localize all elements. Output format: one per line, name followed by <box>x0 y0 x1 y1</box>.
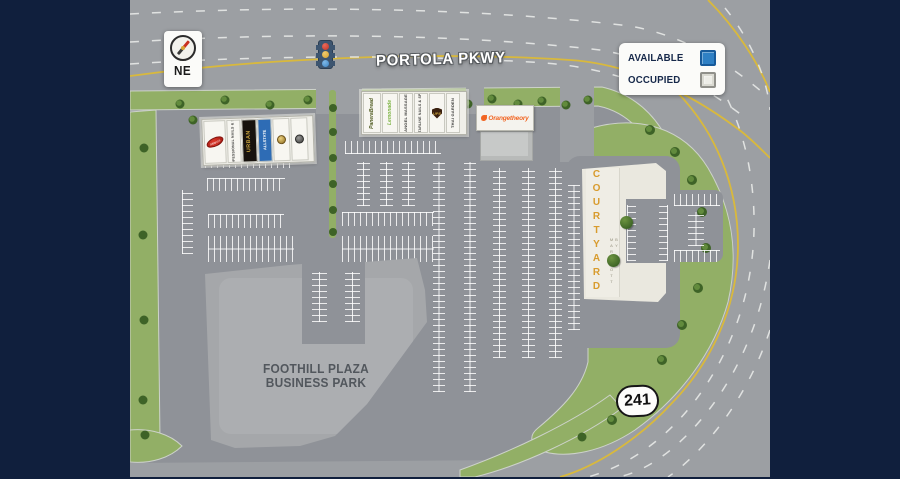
parking-stripes <box>208 214 284 228</box>
tenant-sign-round-badge-gold <box>272 118 290 162</box>
ups-logo: UPS <box>432 108 442 119</box>
legend-available-swatch <box>700 50 716 66</box>
parking-stripes <box>674 194 720 206</box>
traffic-light-icon <box>318 40 333 69</box>
tenant-sign-round-badge-dark <box>290 117 308 161</box>
tenant-sign-ups: UPS <box>429 93 445 133</box>
legend-available-row: AVAILABLE <box>628 50 716 66</box>
milanos-label: Milano's <box>209 138 221 146</box>
tenant-sign-panera: PaneraBread <box>363 93 381 133</box>
ups-label: UPS <box>433 111 441 116</box>
tenant-sign-starline-nails: STARLINE NAILS & SPA <box>414 93 428 133</box>
traffic-light-red <box>322 43 329 50</box>
parking-stripes <box>464 162 476 392</box>
parking-stripes <box>357 162 370 206</box>
tree <box>607 254 620 267</box>
site-plan-map: FOOTHILL PLAZA BUSINESS PARK Milano's PR… <box>130 0 770 477</box>
tenant-sign-lemonade: Lemonade <box>382 93 398 133</box>
parking-stripes <box>182 190 193 254</box>
parking-stripes <box>342 212 434 226</box>
parking-stripes <box>522 168 535 358</box>
tenant-sign-allstate: ALLSTATE <box>257 119 272 162</box>
tree <box>620 216 633 229</box>
parking-stripes <box>207 178 285 191</box>
legend: AVAILABLE OCCUPIED <box>619 43 725 95</box>
parking-stripes <box>549 168 562 358</box>
parking-stripes <box>312 272 327 322</box>
tenant-sign-thai-garden: THAI GARDEN <box>446 93 460 133</box>
legend-occupied-row: OCCUPIED <box>628 72 716 88</box>
parking-stripes <box>688 212 704 246</box>
compass-direction-label: NE <box>174 63 191 78</box>
tenant-sign-nails-spa: PROFESSIONAL NAILS & SPA <box>226 120 241 163</box>
legend-occupied-swatch <box>700 72 716 88</box>
dark-badge-logo <box>295 134 304 143</box>
traffic-light-amber <box>322 51 329 58</box>
route-241-shield: 241 <box>615 384 660 418</box>
orangetheory-sign: Orangetheory <box>476 105 534 131</box>
parking-stripes <box>659 205 668 261</box>
parking-stripes <box>345 141 441 154</box>
gold-badge-logo <box>277 135 286 144</box>
orangetheory-label: Orangetheory <box>488 115 528 122</box>
parking-stripes <box>433 162 445 392</box>
parking-stripes <box>208 236 294 262</box>
parking-stripes <box>674 250 720 262</box>
traffic-light-blue <box>322 60 329 67</box>
parking-stripes <box>402 162 415 206</box>
compass-badge: NE <box>164 31 202 87</box>
legend-occupied-label: OCCUPIED <box>628 74 680 86</box>
parking-stripes <box>342 236 434 262</box>
foothill-plaza-label: FOOTHILL PLAZA BUSINESS PARK <box>230 362 403 390</box>
tenant-sign-urban: URBAN <box>241 119 257 162</box>
orangetheory-splat-icon <box>481 115 487 121</box>
route-241-label: 241 <box>624 391 652 410</box>
parking-stripes <box>568 185 580 330</box>
orangetheory-building <box>480 131 533 161</box>
west-shops-building: Milano's PROFESSIONAL NAILS & SPA URBAN … <box>201 115 315 166</box>
courtyard-label: COURTYARD <box>591 169 602 299</box>
parking-stripes <box>345 272 360 322</box>
legend-available-label: AVAILABLE <box>628 52 684 64</box>
compass-icon <box>170 35 196 61</box>
north-shops-building: PaneraBread Lemonade ANGEL MASSAGE STARL… <box>361 91 467 135</box>
courtyard-sublabel: BY MARRIOTT <box>609 237 619 297</box>
parking-stripes <box>627 205 636 261</box>
parking-stripes <box>380 162 393 206</box>
foothill-plaza-label-line2: BUSINESS PARK <box>230 376 403 390</box>
foothill-plaza-label-line1: FOOTHILL PLAZA <box>230 362 403 376</box>
entry-median <box>329 90 336 238</box>
tenant-sign-milanos: Milano's <box>203 120 226 164</box>
compass-center-dot <box>181 46 185 50</box>
milanos-logo: Milano's <box>205 134 225 150</box>
parking-stripes <box>493 168 506 358</box>
tenant-sign-angel-massage: ANGEL MASSAGE <box>399 93 413 133</box>
